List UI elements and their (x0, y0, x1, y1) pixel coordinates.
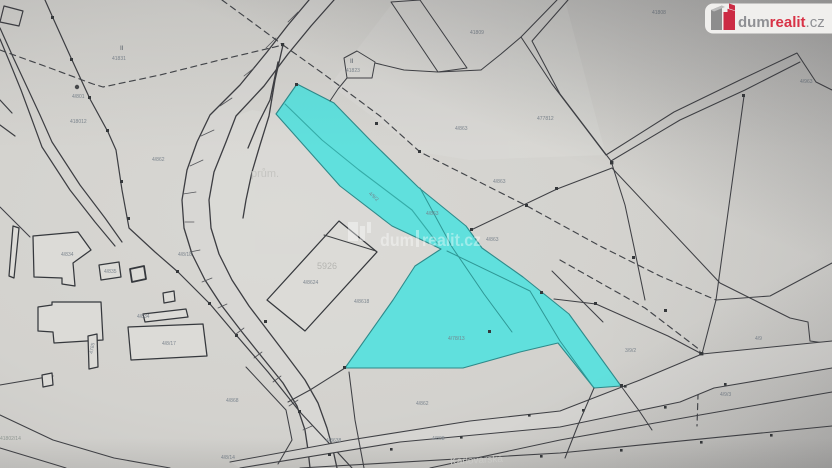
svg-text:dum: dum (380, 230, 414, 250)
svg-text:realit.cz: realit.cz (422, 230, 481, 250)
svg-text:dumrealit.cz: dumrealit.cz (738, 14, 825, 31)
